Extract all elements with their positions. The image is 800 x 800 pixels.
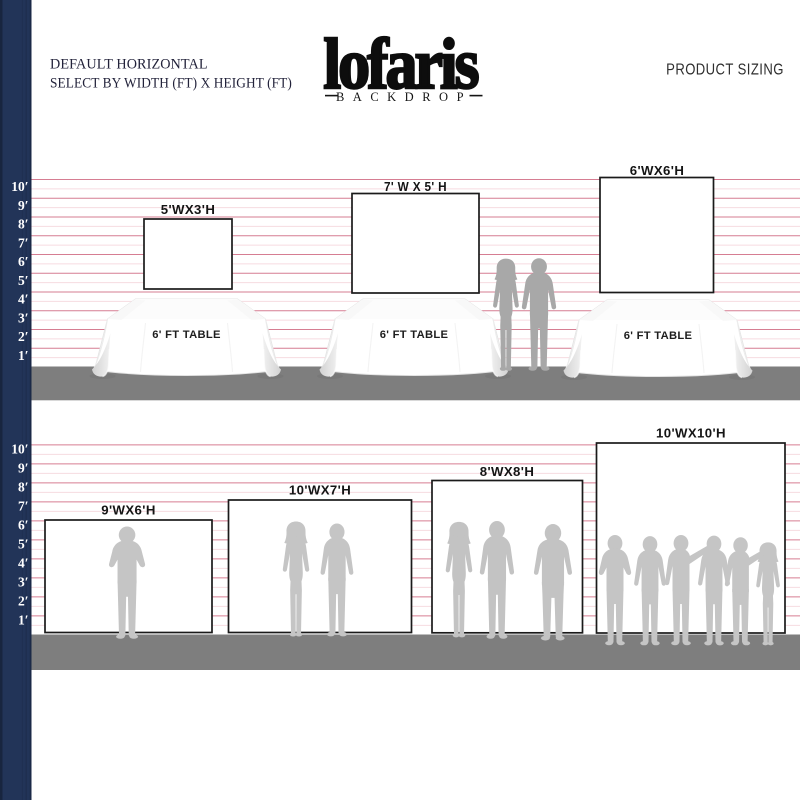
svg-text:7′: 7′ — [18, 235, 29, 250]
svg-text:9′: 9′ — [18, 198, 29, 213]
svg-text:DEFAULT HORIZONTAL: DEFAULT HORIZONTAL — [50, 57, 208, 73]
svg-text:8'WX8'H: 8'WX8'H — [480, 464, 535, 479]
svg-text:5'WX3'H: 5'WX3'H — [161, 202, 216, 217]
svg-text:6' FT TABLE: 6' FT TABLE — [624, 330, 693, 342]
svg-text:BACKDROP: BACKDROP — [336, 90, 472, 104]
svg-text:SELECT BY WIDTH (FT) X HEIGHT: SELECT BY WIDTH (FT) X HEIGHT (FT) — [50, 75, 292, 91]
svg-text:7' W X 5' H: 7' W X 5' H — [384, 179, 447, 194]
svg-text:5′: 5′ — [18, 273, 29, 288]
svg-text:6' FT TABLE: 6' FT TABLE — [380, 329, 449, 341]
svg-text:4′: 4′ — [18, 556, 29, 571]
svg-text:3′: 3′ — [18, 310, 29, 325]
svg-text:9′: 9′ — [18, 461, 29, 476]
svg-text:2′: 2′ — [18, 329, 29, 344]
svg-text:4′: 4′ — [18, 292, 29, 307]
svg-text:2′: 2′ — [18, 594, 29, 609]
svg-text:10'WX10'H: 10'WX10'H — [656, 426, 726, 441]
svg-text:10′: 10′ — [11, 179, 28, 194]
svg-text:6'WX6'H: 6'WX6'H — [630, 163, 685, 178]
svg-text:8′: 8′ — [18, 480, 29, 495]
svg-text:10′: 10′ — [11, 442, 28, 457]
svg-text:7′: 7′ — [18, 499, 29, 514]
svg-text:1′: 1′ — [18, 613, 29, 628]
svg-text:9'WX6'H: 9'WX6'H — [101, 503, 156, 518]
svg-text:5′: 5′ — [18, 537, 29, 552]
svg-text:10'WX7'H: 10'WX7'H — [289, 483, 351, 498]
svg-text:6' FT TABLE: 6' FT TABLE — [152, 329, 221, 341]
svg-text:1′: 1′ — [18, 348, 29, 363]
svg-text:8′: 8′ — [18, 217, 29, 232]
svg-text:PRODUCT SIZING: PRODUCT SIZING — [666, 62, 784, 79]
svg-text:6′: 6′ — [18, 518, 29, 533]
svg-text:6′: 6′ — [18, 254, 29, 269]
svg-text:3′: 3′ — [18, 575, 29, 590]
